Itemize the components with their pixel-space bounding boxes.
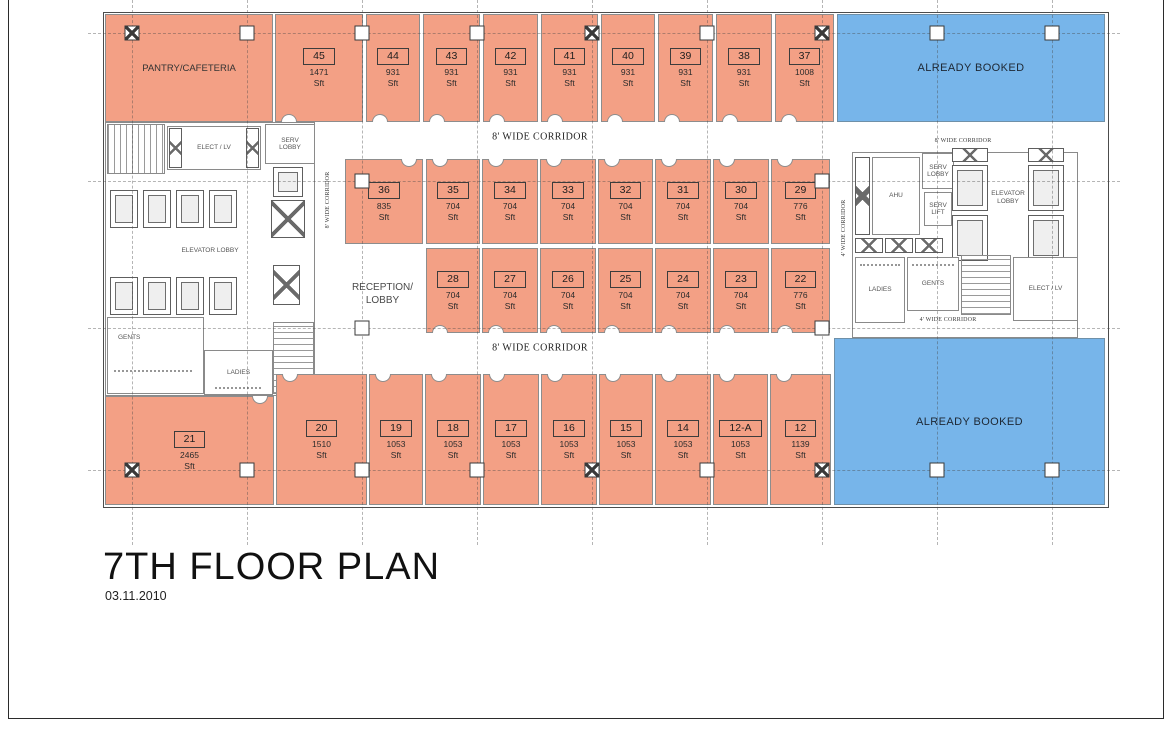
unit-area: 1053	[387, 439, 406, 449]
unit-room: 141053Sft	[655, 374, 711, 505]
passenger-elevator-icon	[176, 190, 204, 228]
grid-line-horizontal	[88, 181, 1120, 182]
unit-room: 36835Sft	[345, 159, 423, 244]
passenger-elevator-icon	[1028, 165, 1064, 211]
unit-number: 14	[667, 420, 699, 437]
unit-number: 36	[368, 182, 400, 199]
column-marker	[355, 26, 370, 41]
corridor-label-top: 8' WIDE CORRIDOR	[492, 132, 588, 143]
elevator-lobby-label-right: ELEVATOR LOBBY	[988, 190, 1028, 205]
unit-area-suffix: Sft	[736, 212, 746, 222]
serv-lobby-room-left: SERV LOBBY	[265, 124, 315, 164]
column-marker	[930, 463, 945, 478]
unit-area: 931	[737, 67, 751, 77]
unit-number: 12	[785, 420, 817, 437]
unit-number: 33	[552, 182, 584, 199]
unit-number: 42	[495, 48, 527, 65]
pantry-label: PANTRY/CAFETERIA	[142, 63, 236, 74]
shaft-icon	[1028, 148, 1064, 162]
unit-number: 41	[554, 48, 586, 65]
column-marker	[355, 321, 370, 336]
unit-number: 29	[785, 182, 817, 199]
ladies-room-right: LADIES	[855, 257, 905, 323]
unit-area: 1008	[795, 67, 814, 77]
unit-area: 704	[618, 201, 632, 211]
door-arc-icon	[661, 159, 677, 167]
unit-room: 28704Sft	[426, 248, 480, 333]
door-arc-icon	[719, 159, 735, 167]
column-marker	[240, 26, 255, 41]
unit-area-suffix: Sft	[678, 301, 688, 311]
door-arc-icon	[661, 325, 677, 333]
unit-area-suffix: Sft	[795, 212, 805, 222]
elevator-lobby-label-left: ELEVATOR LOBBY	[105, 247, 315, 255]
unit-area-suffix: Sft	[623, 78, 633, 88]
column-marker	[1045, 26, 1060, 41]
unit-area-suffix: Sft	[678, 212, 688, 222]
unit-room: 24704Sft	[655, 248, 711, 333]
stairs-icon	[961, 255, 1011, 315]
unit-area: 931	[621, 67, 635, 77]
unit-number: 21	[174, 431, 206, 448]
unit-area: 776	[793, 290, 807, 300]
column-marker	[700, 26, 715, 41]
door-arc-icon	[719, 374, 735, 382]
unit-area-suffix: Sft	[795, 301, 805, 311]
door-arc-icon	[607, 114, 623, 122]
door-arc-icon	[431, 374, 447, 382]
column-marker	[815, 321, 830, 336]
column-marker	[700, 463, 715, 478]
passenger-elevator-icon	[110, 190, 138, 228]
unit-area-suffix: Sft	[379, 212, 389, 222]
unit-area-suffix: Sft	[316, 450, 326, 460]
corridor-label-bottom-right: 4' WIDE CORRIDOR	[920, 317, 977, 323]
column-marker	[355, 463, 370, 478]
unit-area-suffix: Sft	[620, 212, 630, 222]
plan-title: 7TH FLOOR PLAN	[103, 546, 440, 589]
unit-area: 931	[386, 67, 400, 77]
door-arc-icon	[432, 159, 448, 167]
reception-lobby-area: RECEPTION/ LOBBY	[335, 250, 430, 338]
unit-area: 704	[734, 290, 748, 300]
unit-area-suffix: Sft	[735, 450, 745, 460]
unit-area: 704	[503, 201, 517, 211]
unit-number: 23	[725, 271, 757, 288]
unit-area: 931	[444, 67, 458, 77]
door-arc-icon	[547, 114, 563, 122]
gents-label-right: GENTS	[922, 280, 944, 288]
unit-area: 1139	[791, 439, 809, 449]
serv-lobby-label-left: SERV LOBBY	[279, 137, 301, 152]
unit-area-suffix: Sft	[314, 78, 324, 88]
unit-room: 23704Sft	[713, 248, 769, 333]
unit-area-suffix: Sft	[564, 78, 574, 88]
shaft-icon	[915, 238, 943, 253]
elect-lv-room-right: ELECT / LV	[1013, 257, 1078, 321]
door-arc-icon	[777, 159, 793, 167]
unit-area: 704	[734, 201, 748, 211]
column-marker	[470, 26, 485, 41]
shaft-icon	[273, 265, 300, 305]
unit-number: 26	[552, 271, 584, 288]
serv-lift-room: SERV LIFT	[924, 192, 952, 226]
door-arc-icon	[432, 325, 448, 333]
door-arc-icon	[488, 325, 504, 333]
unit-area-suffix: Sft	[680, 78, 690, 88]
unit-number: 30	[725, 182, 757, 199]
unit-number: 27	[494, 271, 526, 288]
shaft-icon	[855, 238, 883, 253]
unit-number: 25	[610, 271, 642, 288]
unit-area-suffix: Sft	[736, 301, 746, 311]
unit-number: 12-A	[719, 420, 761, 437]
door-arc-icon	[375, 374, 391, 382]
already-booked-area: ALREADY BOOKED	[834, 338, 1105, 505]
unit-area-suffix: Sft	[795, 450, 805, 460]
unit-area: 704	[676, 290, 690, 300]
already-booked-label: ALREADY BOOKED	[918, 62, 1025, 74]
unit-area-suffix: Sft	[446, 78, 456, 88]
unit-number: 43	[436, 48, 468, 65]
unit-area: 931	[678, 67, 692, 77]
unit-area-suffix: Sft	[563, 301, 573, 311]
door-arc-icon	[281, 114, 297, 122]
unit-area: 704	[561, 290, 575, 300]
door-arc-icon	[604, 159, 620, 167]
unit-room: 26704Sft	[540, 248, 596, 333]
unit-area: 1053	[560, 439, 579, 449]
unit-room: 161053Sft	[541, 374, 597, 505]
unit-room: 34704Sft	[482, 159, 538, 244]
unit-area: 704	[446, 201, 460, 211]
column-marker	[470, 463, 485, 478]
unit-area: 704	[446, 290, 460, 300]
door-arc-icon	[488, 159, 504, 167]
door-arc-icon	[661, 374, 677, 382]
unit-room: 33704Sft	[540, 159, 596, 244]
passenger-elevator-icon	[209, 277, 237, 315]
plan-date: 03.11.2010	[105, 589, 167, 603]
passenger-elevator-icon	[176, 277, 204, 315]
passenger-elevator-icon	[1028, 215, 1064, 261]
door-arc-icon	[372, 114, 388, 122]
unit-room: 31704Sft	[655, 159, 711, 244]
unit-area: 776	[793, 201, 807, 211]
unit-room: 212465Sft	[105, 396, 274, 505]
unit-area: 2465	[180, 450, 199, 460]
unit-area-suffix: Sft	[620, 301, 630, 311]
column-marker	[125, 26, 140, 41]
grid-line-horizontal	[88, 328, 1120, 329]
door-arc-icon	[401, 159, 417, 167]
unit-number: 16	[553, 420, 585, 437]
unit-room: 171053Sft	[483, 374, 539, 505]
unit-area-suffix: Sft	[563, 212, 573, 222]
unit-room: 38931Sft	[716, 14, 772, 122]
unit-room: 35704Sft	[426, 159, 480, 244]
unit-area-suffix: Sft	[448, 212, 458, 222]
unit-room: 42931Sft	[483, 14, 538, 122]
door-arc-icon	[547, 374, 563, 382]
unit-room: 12-A1053Sft	[713, 374, 768, 505]
toilet-fixtures-icon	[114, 370, 192, 372]
column-marker	[240, 463, 255, 478]
toilet-fixtures-icon	[860, 264, 900, 266]
unit-area: 704	[503, 290, 517, 300]
unit-number: 38	[728, 48, 760, 65]
unit-room: 151053Sft	[599, 374, 653, 505]
unit-number: 17	[495, 420, 527, 437]
corridor-label-right-vertical: 4' WIDE CORRIDOR	[841, 200, 847, 257]
unit-area-suffix: Sft	[505, 301, 515, 311]
unit-room: 30704Sft	[713, 159, 769, 244]
shaft-icon	[271, 200, 305, 238]
door-arc-icon	[489, 114, 505, 122]
unit-number: 19	[380, 420, 412, 437]
column-marker	[930, 26, 945, 41]
unit-area-suffix: Sft	[505, 212, 515, 222]
already-booked-label: ALREADY BOOKED	[916, 416, 1023, 428]
unit-number: 44	[377, 48, 409, 65]
column-marker	[1045, 463, 1060, 478]
unit-area-suffix: Sft	[391, 450, 401, 460]
unit-area: 1053	[617, 439, 636, 449]
unit-area: 704	[676, 201, 690, 211]
unit-area: 704	[561, 201, 575, 211]
unit-area-suffix: Sft	[799, 78, 809, 88]
serv-lobby-label-right: SERV LOBBY	[927, 164, 949, 179]
unit-area: 835	[377, 201, 391, 211]
unit-area-suffix: Sft	[506, 450, 516, 460]
column-marker	[355, 174, 370, 189]
unit-number: 39	[670, 48, 702, 65]
unit-room: 40931Sft	[601, 14, 655, 122]
unit-area: 1053	[674, 439, 693, 449]
unit-room: 451471Sft	[275, 14, 363, 122]
passenger-elevator-icon	[110, 277, 138, 315]
passenger-elevator-icon	[143, 277, 171, 315]
unit-number: 15	[610, 420, 642, 437]
door-arc-icon	[546, 159, 562, 167]
unit-area-suffix: Sft	[448, 450, 458, 460]
door-arc-icon	[605, 374, 621, 382]
corridor-label-top-right: 8' WIDE CORRIDOR	[935, 138, 992, 144]
unit-area-suffix: Sft	[739, 78, 749, 88]
ladies-label-right: LADIES	[868, 286, 891, 294]
unit-area: 1053	[731, 439, 750, 449]
unit-room: 201510Sft	[276, 374, 367, 505]
unit-room: 32704Sft	[598, 159, 653, 244]
unit-area: 931	[562, 67, 576, 77]
unit-area: 1053	[444, 439, 463, 449]
unit-number: 24	[667, 271, 699, 288]
unit-area: 931	[503, 67, 517, 77]
unit-number: 37	[789, 48, 821, 65]
door-arc-icon	[252, 396, 268, 404]
unit-number: 20	[306, 420, 338, 437]
unit-area-suffix: Sft	[621, 450, 631, 460]
shaft-icon	[885, 238, 913, 253]
stairs-icon	[107, 124, 165, 174]
unit-area: 1053	[502, 439, 521, 449]
unit-area: 1510	[312, 439, 331, 449]
unit-area-suffix: Sft	[564, 450, 574, 460]
corridor-label-left-vertical: 8' WIDE CORRIDOR	[325, 172, 331, 229]
unit-area-suffix: Sft	[448, 301, 458, 311]
unit-number: 34	[494, 182, 526, 199]
door-arc-icon	[664, 114, 680, 122]
door-arc-icon	[489, 374, 505, 382]
unit-area: 704	[618, 290, 632, 300]
unit-number: 31	[667, 182, 699, 199]
passenger-elevator-icon	[952, 165, 988, 211]
door-arc-icon	[719, 325, 735, 333]
door-arc-icon	[777, 325, 793, 333]
elect-lv-label-right: ELECT / LV	[1029, 285, 1063, 293]
serv-lobby-room-right: SERV LOBBY	[922, 153, 954, 189]
unit-area-suffix: Sft	[388, 78, 398, 88]
elect-lv-label-left: ELECT / LV	[197, 144, 231, 152]
toilet-fixtures-icon	[912, 264, 954, 266]
column-marker	[815, 463, 830, 478]
service-lift-icon	[273, 167, 303, 197]
door-arc-icon	[282, 374, 298, 382]
unit-area-suffix: Sft	[505, 78, 515, 88]
door-arc-icon	[429, 114, 445, 122]
unit-number: 32	[610, 182, 642, 199]
unit-number: 28	[437, 271, 469, 288]
unit-room: 44931Sft	[366, 14, 420, 122]
column-marker	[815, 174, 830, 189]
unit-area-suffix: Sft	[184, 461, 194, 471]
column-marker	[125, 463, 140, 478]
column-marker	[585, 463, 600, 478]
toilet-fixtures-icon	[215, 387, 261, 389]
ahu-room: AHU	[872, 157, 920, 235]
unit-area-suffix: Sft	[678, 450, 688, 460]
door-arc-icon	[546, 325, 562, 333]
door-arc-icon	[722, 114, 738, 122]
unit-room: 27704Sft	[482, 248, 538, 333]
shaft-icon	[952, 148, 988, 162]
gents-label-left: GENTS	[118, 334, 140, 342]
unit-number: 22	[785, 271, 817, 288]
unit-room: 25704Sft	[598, 248, 653, 333]
door-arc-icon	[604, 325, 620, 333]
shaft-icon	[855, 157, 870, 235]
passenger-elevator-icon	[209, 190, 237, 228]
ahu-label: AHU	[889, 192, 903, 200]
serv-lift-label: SERV LIFT	[929, 202, 947, 217]
shaft-icon	[169, 128, 182, 168]
column-marker	[815, 26, 830, 41]
unit-room: 191053Sft	[369, 374, 423, 505]
unit-number: 35	[437, 182, 469, 199]
passenger-elevator-icon	[143, 190, 171, 228]
floor-plan: RECEPTION/ LOBBY ELECT / LV SERV LOBBY E…	[0, 0, 1170, 738]
corridor-label-bottom: 8' WIDE CORRIDOR	[492, 343, 588, 354]
column-marker	[585, 26, 600, 41]
already-booked-area: ALREADY BOOKED	[837, 14, 1105, 122]
unit-number: 45	[303, 48, 335, 65]
door-arc-icon	[781, 114, 797, 122]
unit-number: 18	[437, 420, 469, 437]
unit-room: 181053Sft	[425, 374, 481, 505]
unit-area: 1471	[310, 67, 329, 77]
door-arc-icon	[776, 374, 792, 382]
unit-number: 40	[612, 48, 644, 65]
